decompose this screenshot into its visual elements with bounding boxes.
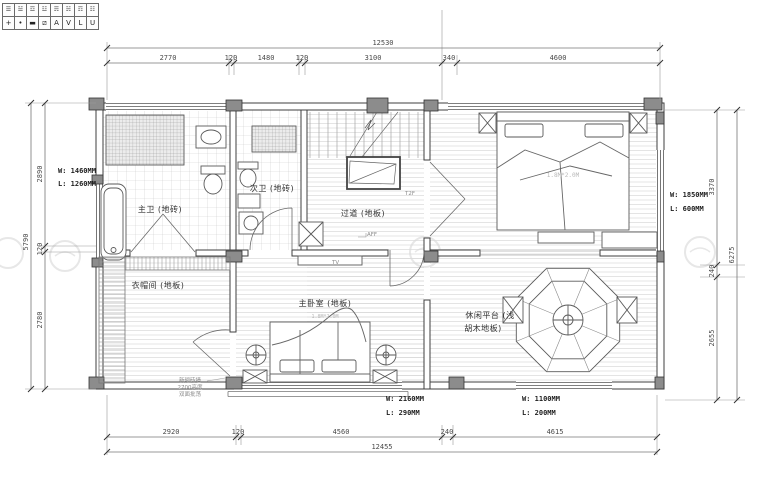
floorplan-canvas: ☰ ☱ ☲ ☳ ☴ ☵ ☶ ☷ + • ▬ ⧄ A V L U (0, 0, 772, 497)
room-label-leisure-2: 胡木地板) (464, 323, 502, 333)
dim-bottom-seg: 2920 (163, 428, 180, 436)
dim-top-seg: 3100 (365, 54, 382, 62)
desk (602, 232, 657, 248)
bed-size-label: 1.8M*2.0M (311, 314, 338, 320)
dim-left-seg: 2890 (36, 166, 44, 183)
level-mark: T2F (404, 191, 415, 197)
right-window-width: W: 1850MM (670, 191, 708, 199)
bathtub (101, 184, 126, 260)
dim-top-seg: 340 (443, 54, 456, 62)
closet-note-line: 新砌砖墙 (179, 376, 202, 384)
dim-bottom-overall: 12455 (371, 443, 392, 451)
right-window-length: L: 600MM (670, 205, 704, 213)
dim-bottom-seg: 4560 (333, 428, 350, 436)
floorplan-drawing: 12530 2770 120 1480 120 3100 340 4600 29… (0, 0, 772, 497)
dim-top-seg: 2770 (160, 54, 177, 62)
bottom-window-length: L: 290MM (386, 409, 420, 417)
room-label-corridor: 过道 (地板) (341, 208, 385, 218)
room-label-master-bedroom: 主卧室 (地板) (299, 298, 352, 308)
dim-right-seg: 3370 (708, 179, 716, 196)
dimension-top: 12530 2770 120 1480 120 3100 340 4600 (104, 10, 663, 100)
dim-top-seg: 4600 (550, 54, 567, 62)
dim-bottom-seg: 4615 (547, 428, 564, 436)
dimension-left: 5790 2890 120 2780 (22, 100, 96, 392)
toilet-tank (201, 166, 225, 174)
room-label-closet: 衣帽间 (地板) (132, 280, 185, 290)
tv-cabinet (298, 256, 362, 265)
room-label-master-bath: 主卫 (地砖) (138, 204, 182, 214)
dim-top-seg: 120 (225, 54, 238, 62)
dim-top-seg: 1480 (258, 54, 275, 62)
dim-right-seg: 2655 (708, 330, 716, 347)
dim-right-overall: 6275 (728, 247, 736, 264)
bottom-window-width: W: 2160MM (386, 395, 424, 403)
dim-top-seg: 120 (296, 54, 309, 62)
bed-size-label: 1.8M*2.0M (547, 172, 580, 179)
dimension-right: 3370 240 2655 6275 (665, 107, 745, 403)
bottom-right-window-length: L: 200MM (522, 409, 556, 417)
dim-top-overall: 12530 (372, 39, 393, 47)
sink (196, 126, 226, 148)
dim-bottom-seg: 240 (441, 428, 454, 436)
room-label-leisure-1: 休闲平台 (浅 (465, 310, 514, 320)
left-window-width: W: 1460MM (58, 167, 96, 175)
closet-note-line: 双面批荡 (179, 390, 202, 398)
dim-bottom-seg: 120 (232, 428, 245, 436)
bottom-right-window-width: W: 1100MM (522, 395, 560, 403)
dimension-bottom: 2920 120 4560 240 4615 12455 (104, 395, 660, 455)
dim-left-seg: 120 (36, 243, 44, 256)
dim-right-seg: 240 (708, 265, 716, 278)
tv-label: TV (331, 260, 339, 266)
closet-note-line: 2700高度 (178, 383, 203, 391)
dim-left-overall: 5790 (22, 234, 30, 251)
level-mark: AFF (367, 232, 377, 238)
dim-left-seg: 2780 (36, 312, 44, 329)
room-label-second-bath: 次卫 (地砖) (250, 183, 294, 193)
left-window-length: L: 1260MM (58, 180, 96, 188)
